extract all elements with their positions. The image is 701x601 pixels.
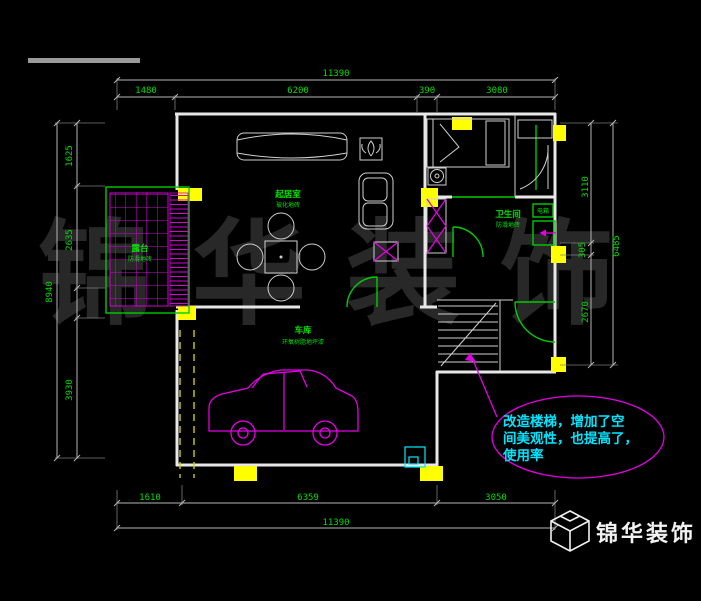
dim-bottom-total: 11390 (322, 518, 349, 528)
dim-right-3: 2670 (581, 301, 591, 323)
dining-set (237, 213, 325, 301)
terrace-floor-label: 防滑地砖 (128, 255, 152, 263)
dim-bottom-2: 6359 (297, 493, 319, 503)
callout-line-2: 间美观性，也提高了， (503, 430, 638, 447)
floorplan-drawing: 露台 防滑地砖 起居室 玻化地砖 (0, 0, 701, 601)
dim-top-4: 3080 (486, 86, 508, 96)
dim-left-2: 2635 (65, 229, 75, 251)
green-partitions (452, 125, 536, 197)
dim-top-2: 6200 (287, 86, 309, 96)
cad-canvas: 锦华装饰 (0, 0, 701, 601)
dim-left-3: 3930 (65, 379, 75, 401)
dim-bottom-3: 3050 (485, 493, 507, 503)
closet-x-strip (374, 199, 446, 261)
cube-logo-icon (551, 511, 589, 551)
company-logo-text: 锦华装饰 (596, 521, 696, 547)
living-floor-label: 玻化地砖 (276, 201, 300, 209)
plant-box (360, 138, 382, 160)
terrace: 露台 防滑地砖 (106, 187, 189, 313)
terrace-label: 露台 (131, 243, 149, 254)
panel-label: 电箱 (537, 207, 549, 215)
dim-bottom: 1610 6359 3050 11390 (114, 485, 558, 531)
dim-left-1: 1625 (65, 145, 75, 167)
wardrobe (518, 120, 552, 189)
living-label: 起居室 (274, 189, 301, 200)
bath-label: 卫生间 (495, 209, 521, 220)
dim-right-total: 6485 (612, 235, 622, 257)
walls (175, 113, 556, 466)
dim-top: 11390 1480 6200 390 3080 (114, 69, 558, 112)
dim-top-3: 390 (419, 86, 435, 96)
callout-line-1: 改造楼梯，增加了空 (503, 413, 625, 430)
doors (347, 227, 555, 342)
dim-top-1: 1480 (135, 86, 157, 96)
dim-top-total: 11390 (322, 69, 349, 79)
dim-right-2: 305 (578, 242, 588, 258)
garage-label: 车库 (294, 325, 312, 336)
title-bar-fragment (28, 58, 140, 63)
callout-line-3: 使用率 (502, 447, 544, 464)
dim-left-total: 8940 (45, 281, 55, 303)
dim-left: 1625 2635 3930 8940 (45, 120, 105, 461)
faucet-arrow-icon (540, 230, 547, 237)
garage-floor-label: 环氧树脂地坪漆 (282, 338, 324, 346)
bathroom-fixtures: 电箱 (533, 204, 556, 245)
car (209, 370, 358, 445)
dim-bottom-1: 1610 (139, 493, 161, 503)
dim-right-1: 3110 (581, 176, 591, 198)
sofa (359, 173, 393, 229)
garage-door-dashed (180, 330, 194, 478)
sideboard (237, 133, 347, 160)
bath-floor-label: 防滑地砖 (496, 221, 520, 229)
dim-right: 3110 305 2670 6485 (560, 120, 622, 368)
company-logo: 锦华装饰 (551, 511, 696, 551)
